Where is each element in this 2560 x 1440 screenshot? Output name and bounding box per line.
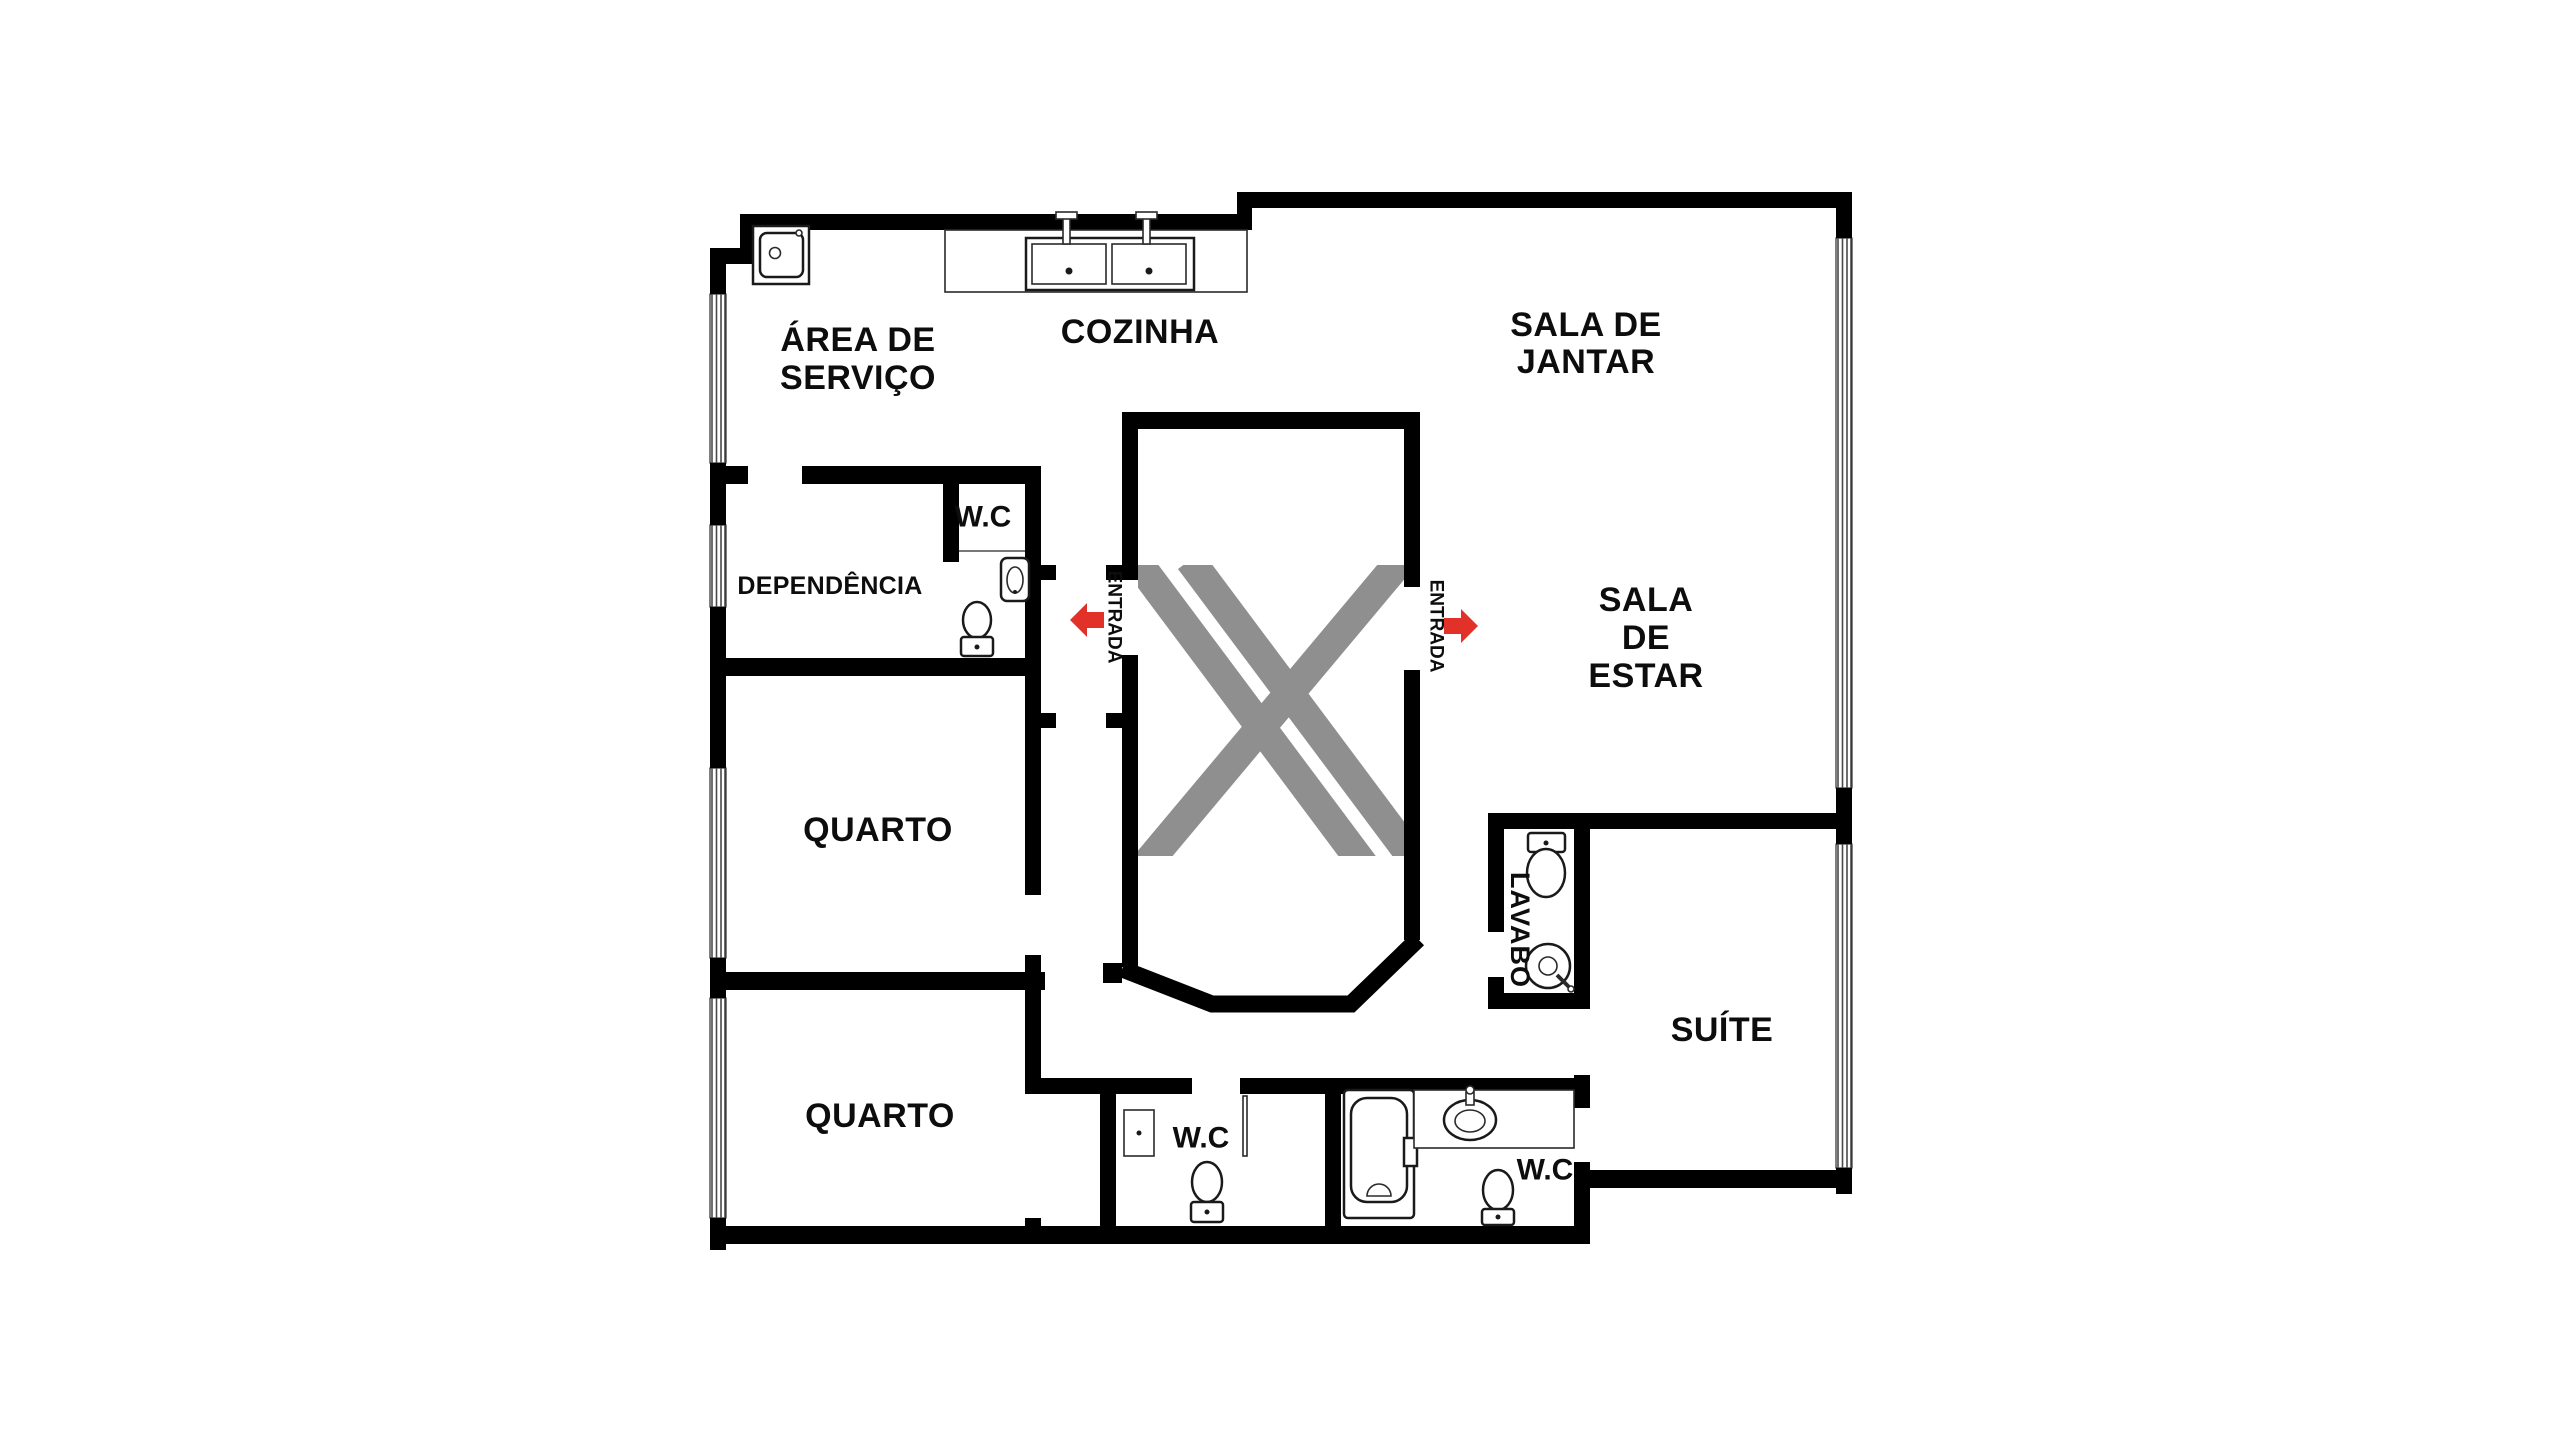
room-label-wc-suite: W.C <box>1517 1154 1574 1187</box>
wall-segment <box>710 248 726 294</box>
wall-segment <box>1488 813 1836 829</box>
room-label-lavabo: LAVABO <box>1505 872 1535 988</box>
wall-segment <box>1122 412 1420 429</box>
wall-segment <box>1836 192 1852 238</box>
wall-segment <box>1325 1094 1341 1226</box>
vanity-sink-icon <box>1414 1086 1574 1148</box>
wall-segment <box>1488 829 1504 932</box>
wall-segment <box>1404 412 1420 587</box>
window-quarto-1 <box>710 768 726 958</box>
room-label-sala-estar: ESTAR <box>1588 657 1703 695</box>
wall-segment <box>1122 412 1138 580</box>
room-label-sala-estar: DE <box>1622 619 1670 657</box>
wall-segment <box>1836 788 1852 844</box>
entrance-arrow-left-icon <box>1070 603 1104 637</box>
stripe-diagonal-icon <box>1190 560 1420 868</box>
room-label-sala-jantar: JANTAR <box>1517 343 1655 381</box>
wall-segment <box>1574 1075 1590 1108</box>
wall-segment <box>1025 678 1041 895</box>
room-label-suite: SUÍTE <box>1671 1011 1774 1049</box>
wall-segment <box>1103 963 1122 983</box>
wall-segment <box>1025 1218 1041 1244</box>
wall-segment <box>710 1226 1590 1244</box>
entrance-label-left: ENTRADA <box>1104 571 1125 664</box>
wall-segment <box>1574 829 1590 1009</box>
room-label-cozinha: COZINHA <box>1061 313 1219 351</box>
wall-segment <box>1025 955 1041 1083</box>
wall-segment <box>1574 1162 1590 1226</box>
wall-segment <box>1237 192 1252 230</box>
wall-segment <box>1574 1170 1852 1188</box>
floor-plan-canvas: ÁREA DE SERVIÇO COZINHA SALA DE JANTAR S… <box>0 0 2560 1440</box>
room-label-area-servico: SERVIÇO <box>780 359 936 397</box>
wall-segment <box>710 972 1045 990</box>
void-cross-stripes <box>1136 554 1420 874</box>
shower-icon <box>1124 1110 1154 1156</box>
wall-segment <box>1100 1094 1116 1226</box>
toilet-icon <box>961 602 993 656</box>
wall-segment <box>1041 565 1056 580</box>
room-label-dependencia: DEPENDÊNCIA <box>737 570 922 600</box>
wall-shaft-bottom <box>1130 945 1412 1004</box>
window-quarto-2 <box>710 998 726 1218</box>
window-servico <box>710 294 726 463</box>
laundry-sink-icon <box>753 226 809 284</box>
wall-sink-icon <box>1001 558 1029 601</box>
window-sala <box>1836 238 1852 788</box>
room-label-wc-dependencia: W.C <box>955 501 1012 534</box>
wall-segment <box>802 466 1041 484</box>
room-label-area-servico: ÁREA DE <box>780 321 935 359</box>
room-label-wc-social: W.C <box>1173 1122 1230 1155</box>
wall-segment <box>1025 1078 1192 1094</box>
door-leaf <box>1243 1096 1247 1156</box>
window-dependencia <box>710 525 726 607</box>
bathtub-icon <box>1344 1090 1417 1218</box>
toilet-icon <box>1191 1162 1223 1222</box>
wall-segment <box>710 658 1041 676</box>
room-label-sala-estar: SALA <box>1599 581 1694 619</box>
toilet-icon <box>1482 1170 1514 1225</box>
window-suite <box>1836 844 1852 1168</box>
wall-segment <box>710 466 748 484</box>
wall-segment <box>1404 670 1420 940</box>
wall-segment <box>1122 655 1138 967</box>
wall-segment <box>1106 713 1122 728</box>
room-label-sala-jantar: SALA DE <box>1510 306 1661 344</box>
wall-segment <box>1237 192 1852 208</box>
entrance-arrow-right-icon <box>1444 609 1478 643</box>
room-label-quarto-2: QUARTO <box>805 1097 955 1135</box>
wall-segment <box>740 214 1252 230</box>
wall-segment <box>710 607 726 768</box>
room-label-quarto-1: QUARTO <box>803 811 953 849</box>
entrance-label-right: ENTRADA <box>1426 580 1447 673</box>
wall-segment <box>1041 713 1056 728</box>
